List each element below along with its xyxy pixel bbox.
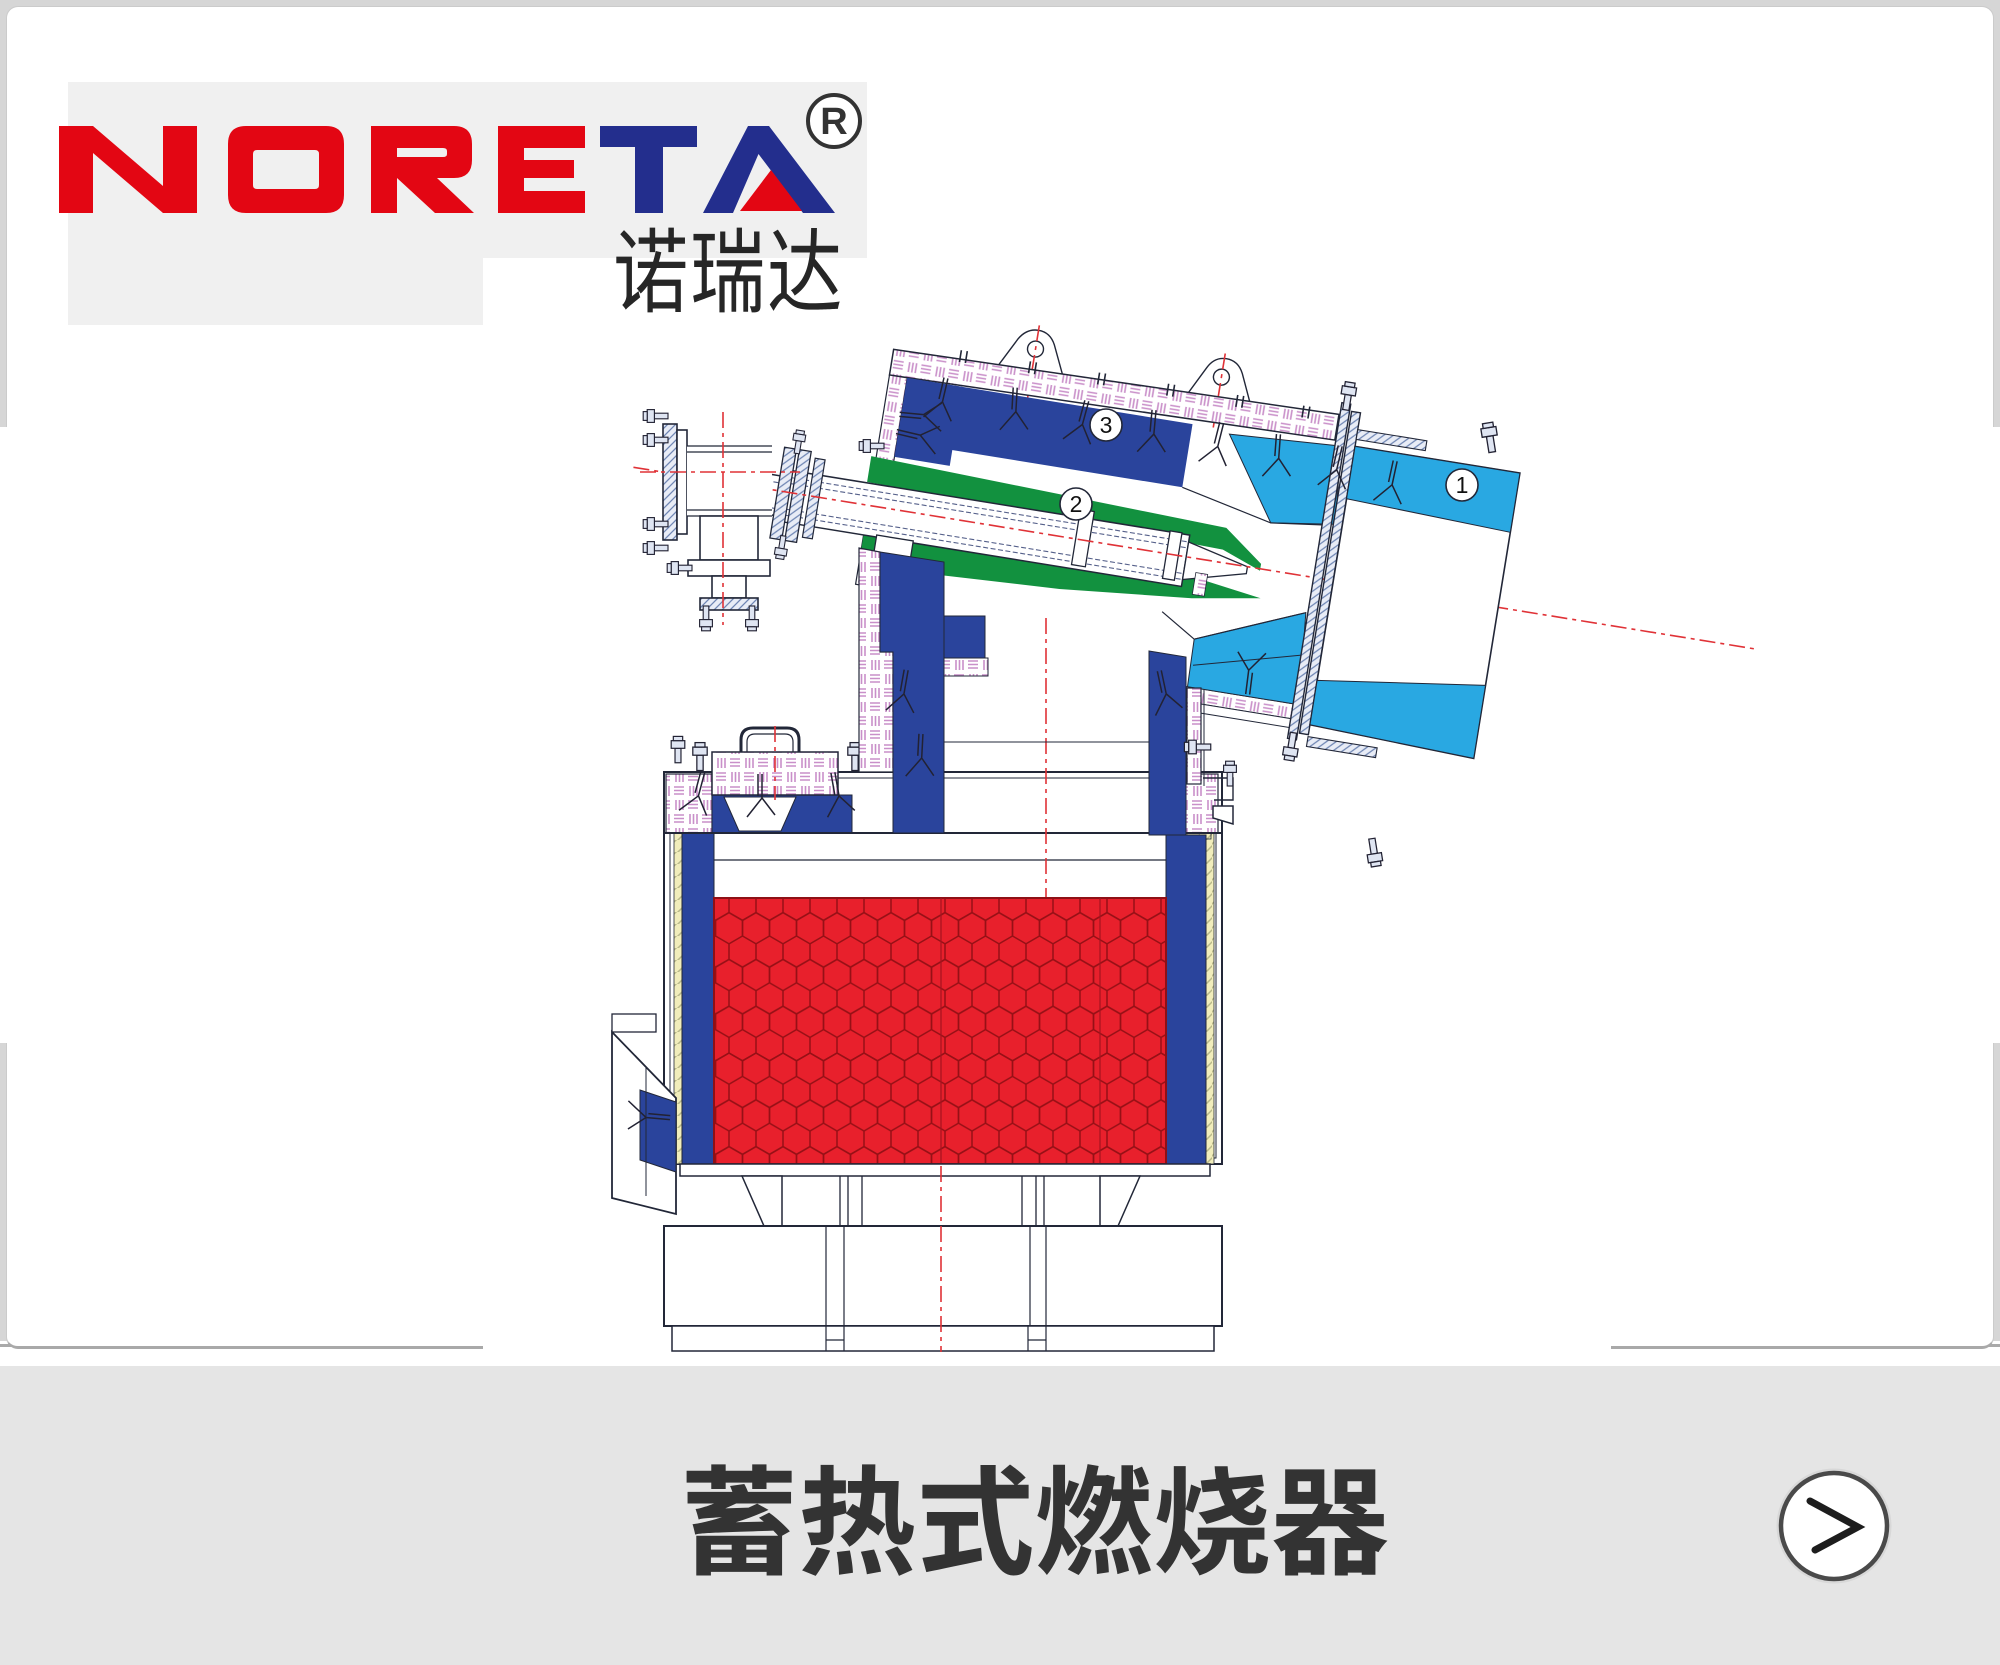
svg-text:1: 1 [1456, 472, 1469, 498]
svg-text:2: 2 [1070, 491, 1083, 517]
svg-text:3: 3 [1100, 412, 1113, 438]
